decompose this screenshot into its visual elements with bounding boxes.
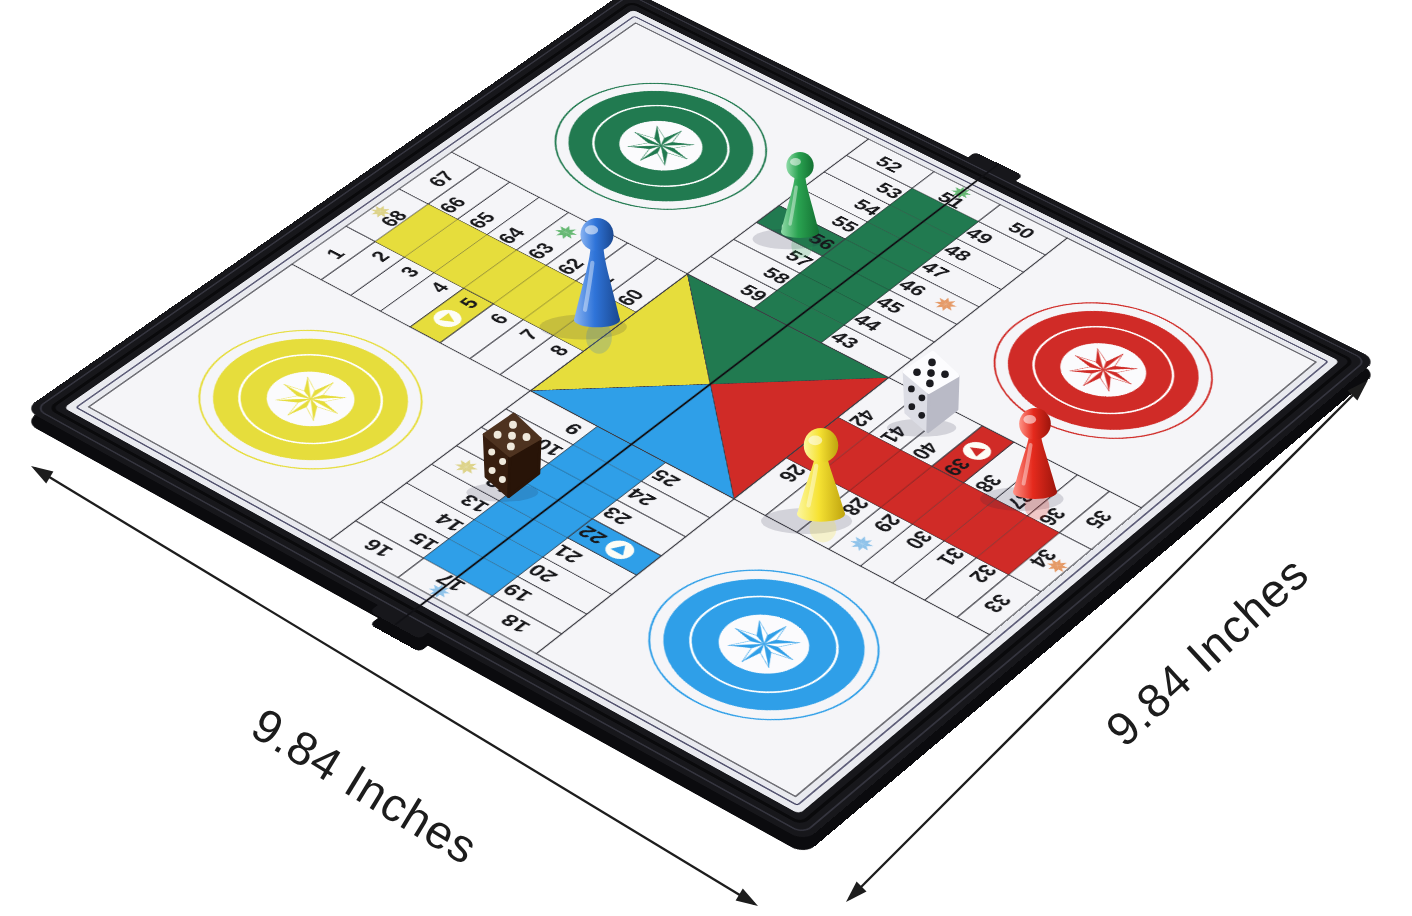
product-photo: 6768166265364463562661760852515053495448… [0,0,1412,916]
dimension-label-bottom: 9.84 Inches [242,697,488,876]
